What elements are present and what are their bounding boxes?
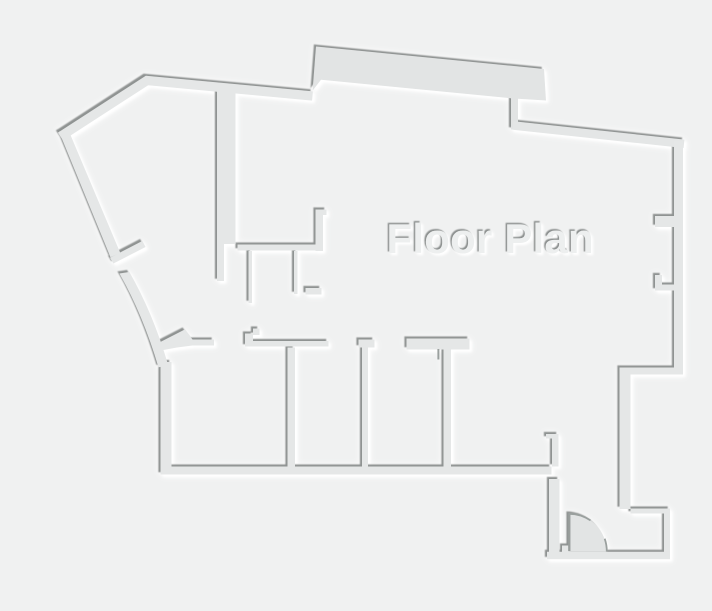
svg-text:Floor Plan: Floor Plan [387,215,594,262]
